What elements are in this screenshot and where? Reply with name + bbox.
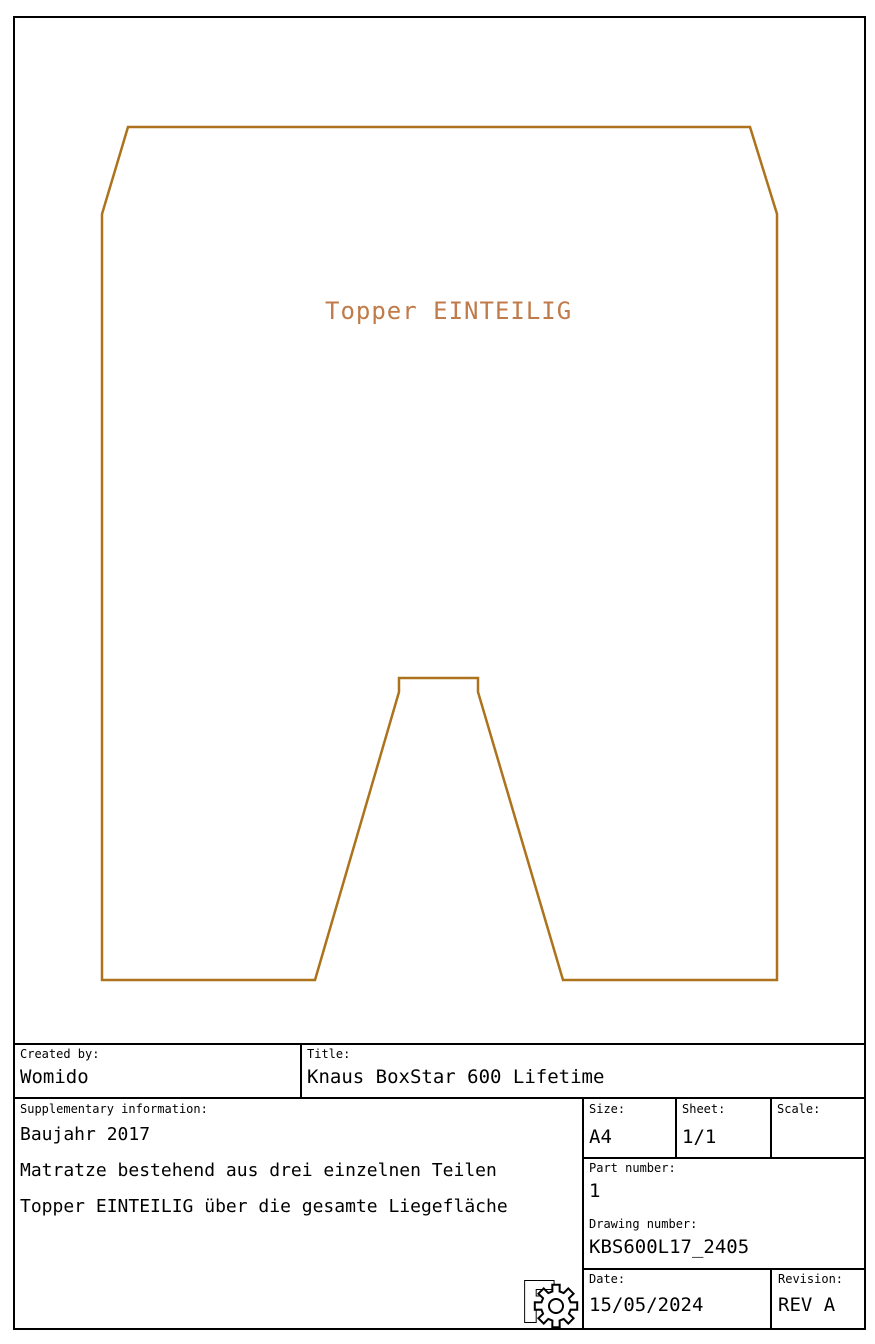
- revision-label: Revision:: [778, 1272, 843, 1286]
- supplementary-line: Matratze bestehend aus drei einzelnen Te…: [20, 1160, 497, 1181]
- titleblock-row1-bottom-line: [13, 1097, 866, 1099]
- sheet-scale-divider: [770, 1097, 772, 1159]
- titleblock-top-line: [13, 1043, 866, 1045]
- date-revision-divider: [770, 1268, 772, 1330]
- scale-label: Scale:: [777, 1102, 820, 1116]
- drawing-number-bottom-line: [582, 1268, 866, 1270]
- drawing-number-value: KBS600L17_2405: [589, 1236, 749, 1258]
- drawing-number-label: Drawing number:: [589, 1217, 697, 1231]
- date-label: Date:: [589, 1272, 625, 1286]
- title-label: Title:: [307, 1047, 350, 1061]
- gear-hole: [549, 1299, 563, 1313]
- sheet-label: Sheet:: [682, 1102, 725, 1116]
- part-number-value: 1: [589, 1180, 600, 1202]
- size-row-bottom-line: [582, 1157, 866, 1159]
- supplementary-label: Supplementary information:: [20, 1102, 208, 1116]
- size-sheet-divider: [675, 1097, 677, 1159]
- size-value: A4: [589, 1126, 612, 1148]
- part-number-label: Part number:: [589, 1161, 676, 1175]
- part-label-topper-einteilig: Topper EINTEILIG: [325, 297, 572, 325]
- gear-logo: F: [514, 1258, 584, 1330]
- sheet-value: 1/1: [682, 1126, 716, 1148]
- supplementary-line: Topper EINTEILIG über die gesamte Liegef…: [20, 1196, 508, 1217]
- topper-outline-shape: [102, 127, 777, 980]
- title-value: Knaus BoxStar 600 Lifetime: [307, 1066, 604, 1088]
- date-value: 15/05/2024: [589, 1294, 703, 1316]
- created-by-value: Womido: [20, 1066, 89, 1088]
- createdby-title-divider: [300, 1043, 302, 1099]
- created-by-label: Created by:: [20, 1047, 99, 1061]
- supplementary-line: Baujahr 2017: [20, 1124, 150, 1145]
- size-label: Size:: [589, 1102, 625, 1116]
- revision-value: REV A: [778, 1294, 835, 1316]
